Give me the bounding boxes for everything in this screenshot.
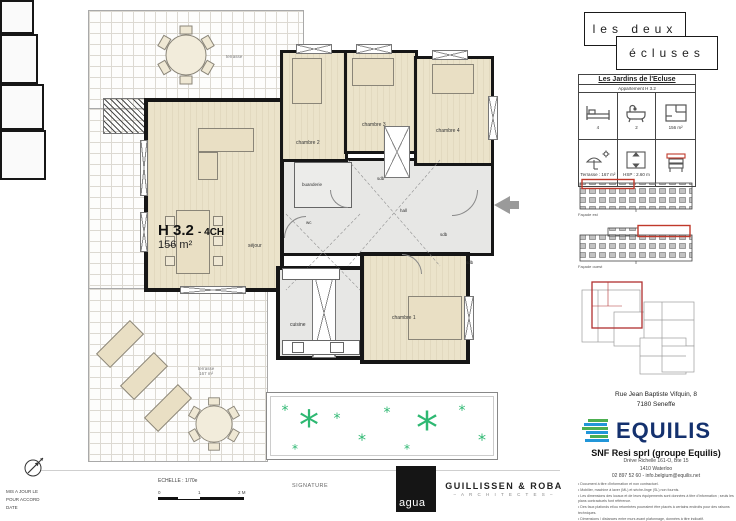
window-chambre3 bbox=[356, 44, 392, 54]
site-address: Rue Jean Baptiste Vifquin, 8 7180 Seneff… bbox=[576, 390, 736, 410]
scale-bar-seg3 bbox=[200, 497, 244, 500]
signature-label: SIGNATURE bbox=[292, 483, 328, 489]
architect-name: GUILLISSEN & ROBA bbox=[444, 481, 564, 491]
bedrooms-value: 4 bbox=[597, 125, 600, 130]
window-chambre2 bbox=[296, 44, 332, 54]
bathrooms-value: 2 bbox=[635, 125, 638, 130]
agua-wordmark: agua bbox=[399, 497, 425, 509]
approval-line-date: DATE bbox=[6, 504, 40, 512]
label-hall: hall bbox=[400, 208, 407, 213]
disclaimer: • Document à titre d'information et non … bbox=[578, 482, 736, 521]
agua-logo: agua bbox=[396, 466, 436, 512]
approval-block: MIS A JOUR LE POUR ACCORD DATE bbox=[6, 488, 40, 512]
equilis-wordmark: EQUILIS bbox=[616, 418, 711, 444]
label-chambre4: chambre 4 bbox=[436, 128, 460, 134]
scale-label: ECHELLE : 1/70e bbox=[158, 478, 197, 484]
info-cell-area: 156 m² bbox=[656, 93, 695, 140]
bed-chambre4 bbox=[432, 64, 474, 94]
sofa-return bbox=[198, 152, 218, 180]
scale-bar-seg2 bbox=[178, 499, 200, 500]
scale-bar-seg1 bbox=[158, 497, 178, 500]
equilis-logo: EQUILIS bbox=[582, 418, 732, 444]
scale-tick-2: 2 M bbox=[238, 490, 246, 495]
developer-block: SNF Resi sprl (groupe Equilis) Drève Ric… bbox=[576, 448, 736, 481]
bath-icon bbox=[623, 103, 649, 123]
closet-hall bbox=[384, 126, 410, 178]
planter: * * * * * * * * * * bbox=[266, 392, 498, 460]
floorplan-icon bbox=[663, 103, 689, 123]
planter-inner-border bbox=[270, 396, 494, 456]
floor-plan: terrasse bbox=[0, 0, 560, 521]
label-cuisine: cuisine bbox=[290, 322, 306, 328]
project-logo-line1: les deux bbox=[593, 22, 678, 36]
bed-chambre1 bbox=[408, 296, 462, 340]
terrace-table-bottom bbox=[186, 396, 242, 452]
label-sejour: séjour bbox=[248, 243, 262, 249]
terrace-parasol-icon bbox=[585, 150, 611, 170]
project-logo-line2: écluses bbox=[629, 46, 705, 60]
key-plan bbox=[578, 276, 708, 380]
label-sdb-3: sdb bbox=[466, 260, 473, 265]
terrace-label-bottom: terrasse 167 m² bbox=[198, 366, 214, 376]
approval-line-accord: POUR ACCORD bbox=[6, 496, 40, 504]
unit-type: - 4CH bbox=[198, 227, 224, 238]
window-sejour-2 bbox=[140, 212, 148, 252]
project-logo-bottom: écluses bbox=[616, 36, 718, 70]
info-cell-bathrooms: 2 bbox=[618, 93, 657, 140]
developer-city: 1410 Waterloo bbox=[576, 466, 736, 474]
bed-chambre2 bbox=[292, 58, 322, 104]
entrance-arrow-tail bbox=[510, 201, 519, 209]
info-card-title: Les Jardins de l'Ecluse bbox=[579, 75, 695, 85]
bed-icon bbox=[585, 103, 611, 123]
approval-line-updated: MIS A JOUR LE bbox=[6, 488, 40, 496]
label-chambre1: chambre 1 bbox=[392, 315, 416, 321]
label-wc-1: wc bbox=[306, 220, 312, 225]
info-cell-bedrooms: 4 bbox=[579, 93, 618, 140]
label-sdb-2: sdb bbox=[440, 232, 447, 237]
window-sejour-1 bbox=[140, 140, 148, 196]
disclaimer-line: • Des faux plafonds et/ou retombées pour… bbox=[578, 505, 736, 517]
terrace-value: Terrasse : 167 m² bbox=[580, 172, 615, 177]
developer-company: SNF Resi sprl (groupe Equilis) bbox=[576, 448, 736, 458]
unit-area: 156 m² bbox=[158, 239, 224, 251]
equilis-logo-icon bbox=[582, 418, 612, 444]
window-chambre4 bbox=[432, 50, 468, 60]
unit-title-block: H 3.2 - 4CH 156 m² bbox=[158, 222, 224, 251]
disclaimer-line: • Dimensions / distances entre murs avan… bbox=[578, 517, 736, 521]
height-value: HSP : 2.60 m bbox=[623, 172, 650, 177]
elevation-west: Façade ouest bbox=[578, 224, 696, 269]
elevation-east-drawing bbox=[578, 178, 696, 212]
elevation-west-drawing bbox=[578, 224, 696, 264]
label-buanderie: buanderie bbox=[302, 182, 322, 187]
scale-bar: 0 1 2 M bbox=[158, 490, 248, 502]
architect-subtitle: – A R C H I T E C T E S – bbox=[444, 492, 564, 497]
terrace-area-text: 167 m² bbox=[198, 371, 214, 376]
label-chambre3: chambre 3 bbox=[362, 122, 386, 128]
north-arrow-icon bbox=[22, 456, 46, 480]
elevation-east: Façade est bbox=[578, 178, 696, 217]
label-sdb-1: sdb bbox=[377, 176, 384, 181]
ceiling-height-icon bbox=[623, 150, 649, 170]
sofa bbox=[198, 128, 254, 152]
bed-chambre3 bbox=[352, 58, 394, 86]
area-value: 156 m² bbox=[669, 125, 683, 130]
elevation-east-label: Façade est bbox=[578, 212, 696, 217]
scale-tick-1: 1 bbox=[198, 490, 201, 495]
footer-rule bbox=[40, 470, 560, 471]
window-east-2 bbox=[464, 296, 474, 340]
info-card-subtitle: Appartement H 3.2 bbox=[579, 85, 695, 93]
kitchen-sink bbox=[292, 342, 304, 353]
apartment-info-card: Les Jardins de l'Ecluse Appartement H 3.… bbox=[578, 74, 696, 187]
kitchen-counter-top bbox=[282, 268, 340, 280]
disclaimer-line: • Les dimensions des locaux et de leurs … bbox=[578, 494, 736, 506]
label-chambre2: chambre 2 bbox=[296, 140, 320, 146]
dining-chair bbox=[213, 256, 223, 266]
elevation-west-label: Façade ouest bbox=[578, 264, 696, 269]
dining-chair bbox=[165, 256, 175, 266]
entrance-arrow-icon bbox=[494, 196, 510, 214]
architect-block: GUILLISSEN & ROBA – A R C H I T E C T E … bbox=[444, 481, 564, 497]
floor-plan-sheet: terrasse bbox=[0, 0, 736, 521]
scale-tick-0: 0 bbox=[158, 490, 161, 495]
window-east-1 bbox=[488, 96, 498, 140]
site-address-line2: 7180 Seneffe bbox=[576, 400, 736, 410]
kitchen-hob bbox=[330, 342, 344, 353]
developer-street: Drève Richelle 161-O, Bte 15 bbox=[576, 458, 736, 466]
site-address-line1: Rue Jean Baptiste Vifquin, 8 bbox=[576, 390, 736, 400]
unit-code: H 3.2 bbox=[158, 222, 194, 239]
developer-contact: 02 897 52 60 - info.belgium@equilis.net bbox=[576, 473, 736, 481]
window-sejour-3 bbox=[180, 286, 246, 294]
building-section-icon bbox=[663, 151, 689, 173]
